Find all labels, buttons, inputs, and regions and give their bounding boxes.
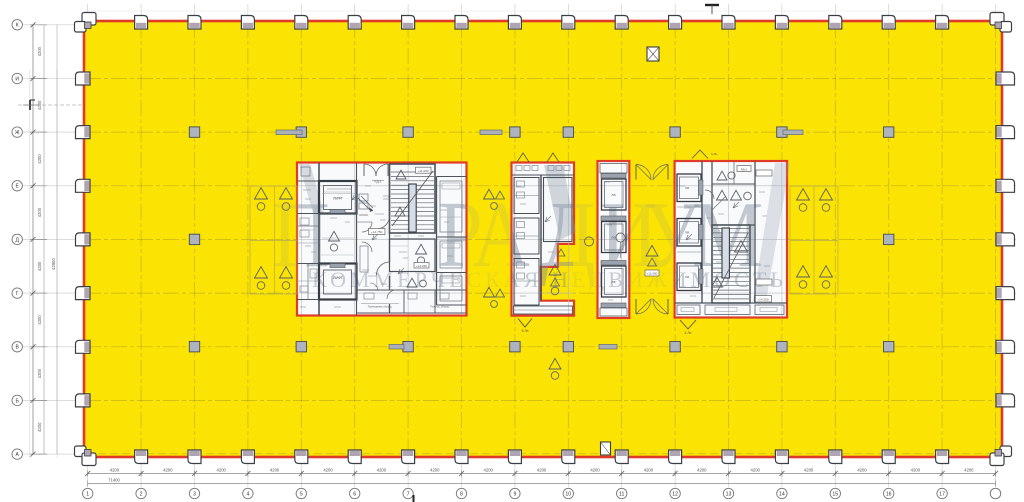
svg-text:2: 2 [140, 491, 143, 497]
svg-text:4200: 4200 [37, 315, 42, 325]
svg-text:4200: 4200 [430, 468, 440, 473]
svg-text:4200: 4200 [37, 46, 42, 56]
svg-text:4200: 4200 [37, 207, 42, 217]
svg-text:9: 9 [513, 491, 516, 497]
svg-text:РД-1: РД-1 [375, 180, 382, 184]
svg-text:И: И [15, 76, 19, 82]
svg-text:ЛФ: ЛФ [685, 231, 690, 235]
svg-text:4200: 4200 [37, 261, 42, 271]
svg-text:РД-2: РД-2 [741, 167, 748, 171]
svg-text:1: 1 [86, 491, 89, 497]
svg-text:11: 11 [619, 491, 624, 497]
svg-text:71400: 71400 [108, 478, 120, 483]
svg-text:К: К [16, 23, 19, 29]
svg-text:+11.000: +11.000 [417, 169, 428, 173]
svg-text:4200: 4200 [644, 468, 654, 473]
svg-text:+14.250: +14.250 [416, 264, 427, 268]
svg-text:3: 3 [193, 491, 196, 497]
svg-text:10: 10 [565, 491, 571, 497]
svg-text:14: 14 [779, 491, 785, 497]
svg-text:4-Лн: 4-Лн [685, 331, 692, 335]
svg-text:ЛИФТ: ЛИФТ [333, 276, 343, 280]
svg-text:16: 16 [886, 491, 892, 497]
svg-text:ЛФ: ЛФ [685, 186, 690, 190]
svg-text:Г: Г [16, 291, 19, 297]
svg-text:4200: 4200 [37, 422, 42, 432]
svg-text:4200: 4200 [37, 368, 42, 378]
svg-text:4200: 4200 [537, 468, 547, 473]
svg-text:Ж: Ж [15, 130, 20, 136]
svg-text:4200: 4200 [323, 468, 333, 473]
svg-text:ЛИФТ: ЛИФТ [333, 197, 343, 201]
svg-text:4200: 4200 [110, 468, 120, 473]
svg-text:4-Лн: 4-Лн [711, 152, 718, 156]
svg-text:4200: 4200 [804, 468, 814, 473]
svg-text:4200: 4200 [751, 468, 761, 473]
svg-text:+14.250: +14.250 [757, 298, 769, 302]
svg-text:Д: Д [16, 237, 20, 243]
svg-text:4200: 4200 [217, 468, 227, 473]
svg-text:+11.000: +11.000 [647, 272, 658, 276]
svg-text:8: 8 [460, 491, 463, 497]
svg-text:12: 12 [672, 491, 678, 497]
svg-text:ЛФ: ЛФ [611, 193, 616, 197]
svg-text:13: 13 [726, 491, 732, 497]
svg-text:4: 4 [246, 491, 249, 497]
svg-text:+14.750: +14.750 [371, 230, 383, 234]
svg-text:4200: 4200 [697, 468, 707, 473]
svg-text:4200: 4200 [590, 468, 600, 473]
svg-text:ЛФ: ЛФ [685, 275, 690, 279]
svg-text:4200: 4200 [857, 468, 867, 473]
svg-text:7: 7 [407, 491, 410, 497]
svg-text:4200: 4200 [163, 468, 173, 473]
svg-text:6: 6 [353, 491, 356, 497]
svg-text:4200: 4200 [37, 154, 42, 164]
svg-text:5: 5 [300, 491, 303, 497]
svg-text:17: 17 [939, 491, 945, 497]
svg-text:4200: 4200 [964, 468, 974, 473]
svg-text:4200: 4200 [377, 468, 387, 473]
svg-text:Помещение уборщ.: Помещение уборщ. [368, 305, 393, 309]
svg-text:15: 15 [832, 491, 838, 497]
svg-text:4200: 4200 [911, 468, 921, 473]
svg-text:ЛФ: ЛФ [611, 280, 616, 284]
svg-text:9-Лн: 9-Лн [522, 329, 529, 333]
svg-text:4200: 4200 [484, 468, 494, 473]
svg-text:42900: 42900 [51, 258, 56, 270]
svg-text:4200: 4200 [270, 468, 280, 473]
